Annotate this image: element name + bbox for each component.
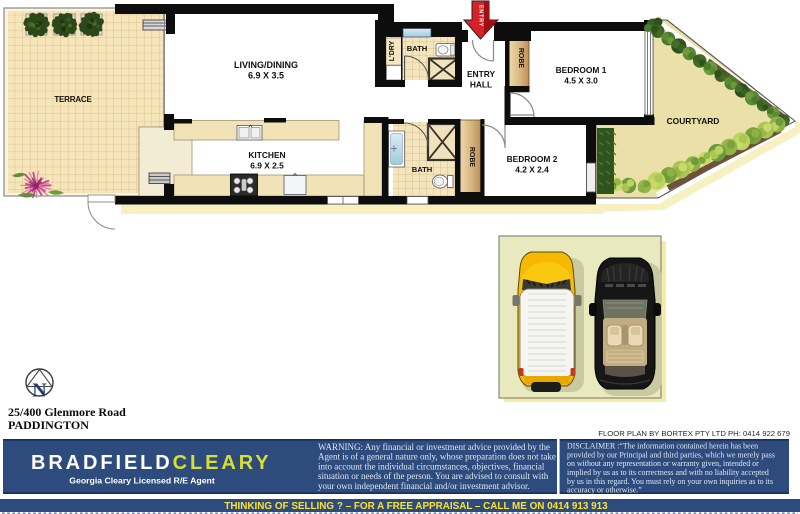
- svg-text:on without any representation: on without any representation or warrant…: [567, 459, 759, 468]
- svg-text:BATH: BATH: [412, 165, 433, 174]
- svg-text:4.2 X 2.4: 4.2 X 2.4: [515, 165, 549, 175]
- svg-text:HALL: HALL: [470, 80, 492, 90]
- svg-text:25/400 Glenmore Road: 25/400 Glenmore Road: [8, 405, 126, 419]
- svg-text:BEDROOM 2: BEDROOM 2: [507, 154, 558, 164]
- svg-text:WARNING: Any financial or inve: WARNING: Any financial or investment adv…: [318, 442, 550, 452]
- svg-text:ENTRY: ENTRY: [467, 69, 495, 79]
- svg-text:situation or needs of the pers: situation or needs of the person. You ar…: [318, 471, 549, 481]
- svg-text:L'DRY: L'DRY: [389, 40, 396, 61]
- svg-text:6.9 X 3.5: 6.9 X 3.5: [248, 71, 284, 81]
- svg-text:BRADFIELDCLEARY: BRADFIELDCLEARY: [31, 452, 272, 474]
- svg-text:by us in this regard. You must: by us in this regard. You must rely on y…: [567, 477, 773, 486]
- svg-text:ROBE: ROBE: [517, 48, 524, 69]
- svg-text:LIVING/DINING: LIVING/DINING: [234, 60, 298, 70]
- svg-text:BEDROOM 1: BEDROOM 1: [556, 65, 607, 75]
- svg-text:BATH: BATH: [407, 44, 428, 53]
- svg-text:6.9 X 2.5: 6.9 X 2.5: [250, 161, 284, 171]
- svg-text:COURTYARD: COURTYARD: [667, 116, 720, 126]
- svg-text:TERRACE: TERRACE: [54, 95, 92, 104]
- svg-text:4.5 X 3.0: 4.5 X 3.0: [564, 76, 598, 86]
- svg-text:accuracy or otherwise.”: accuracy or otherwise.”: [567, 486, 642, 495]
- svg-text:into account the individual ci: into account the individual circumstance…: [318, 461, 545, 471]
- svg-text:FLOOR PLAN BY BORTEX PTY LTD P: FLOOR PLAN BY BORTEX PTY LTD PH: 0414 92…: [598, 429, 790, 438]
- svg-text:provided by our Principal and: provided by our Principal and third part…: [567, 450, 775, 459]
- svg-text:Agent is of a general nature o: Agent is of a general nature only, whose…: [318, 452, 556, 462]
- svg-text:implied by us as to its correc: implied by us as to its correctness and …: [567, 468, 769, 477]
- svg-text:THINKING OF SELLING ? – FOR A: THINKING OF SELLING ? – FOR A FREE APPRA…: [224, 501, 608, 512]
- svg-text:DISCLAIMER :“The information c: DISCLAIMER :“The information contained h…: [567, 442, 758, 451]
- svg-text:Georgia Cleary Licensed R/E Ag: Georgia Cleary Licensed R/E Agent: [69, 476, 215, 486]
- svg-text:N: N: [32, 380, 47, 402]
- svg-text:ROBE: ROBE: [468, 147, 475, 168]
- svg-text:ENTRY: ENTRY: [478, 5, 484, 27]
- svg-text:your own independent financial: your own independent financial and/or in…: [318, 481, 530, 491]
- svg-text:PADDINGTON: PADDINGTON: [8, 418, 89, 432]
- svg-text:KITCHEN: KITCHEN: [248, 150, 285, 160]
